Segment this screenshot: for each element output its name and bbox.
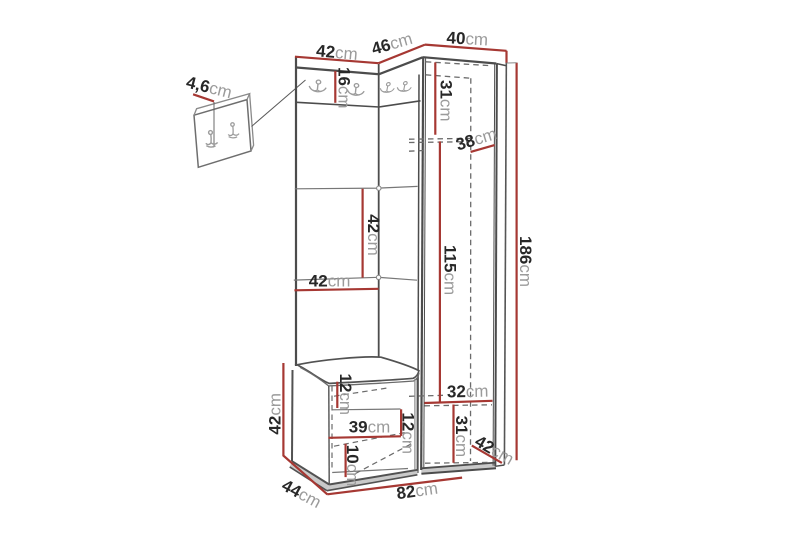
svg-text:40cm: 40cm (446, 28, 489, 49)
svg-text:186cm: 186cm (516, 236, 535, 287)
svg-text:115cm: 115cm (440, 245, 459, 295)
svg-text:12cm: 12cm (336, 374, 355, 416)
svg-text:12cm: 12cm (398, 412, 417, 454)
svg-text:42cm: 42cm (315, 41, 358, 64)
svg-text:39cm: 39cm (349, 418, 391, 437)
svg-text:31cm: 31cm (437, 80, 456, 122)
svg-text:42cm: 42cm (309, 271, 351, 290)
svg-text:10cm: 10cm (343, 445, 362, 487)
svg-text:32cm: 32cm (447, 382, 489, 402)
svg-text:42cm: 42cm (265, 393, 284, 435)
svg-text:16cm: 16cm (335, 67, 354, 109)
svg-text:42cm: 42cm (364, 214, 383, 256)
svg-text:31cm: 31cm (452, 416, 471, 458)
